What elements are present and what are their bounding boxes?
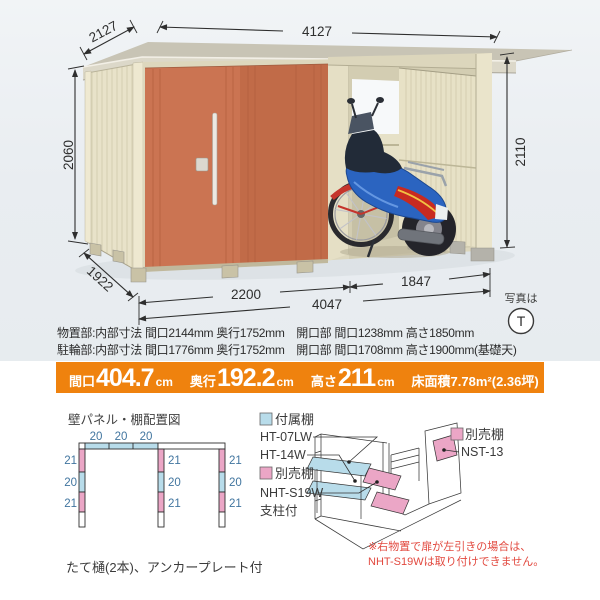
sliding-doors xyxy=(143,64,328,272)
optional-shelf-swatch xyxy=(260,467,272,479)
optional-shelf-note: 支柱付 xyxy=(260,503,298,518)
shed-product-sheet: 2127 4127 2060 2110 1922 2200 1847 4047 … xyxy=(0,0,600,600)
shed-left-wall xyxy=(85,62,143,272)
internal-dimension-specs: 物置部:内部寸法 間口2144mm 奥行1752mm 開口部 間口1238mm … xyxy=(57,325,517,358)
panel-mid-label-1: 21 xyxy=(168,455,181,467)
door-lock xyxy=(196,158,208,171)
optional-shelf2-model: NST-13 xyxy=(461,445,503,459)
dim-width-total: 4047 xyxy=(312,297,342,312)
summary-height-value: 211 xyxy=(338,364,375,393)
panel-left-label-1: 21 xyxy=(64,455,77,467)
right-mirror xyxy=(376,97,384,103)
panel-left-label-2: 20 xyxy=(64,477,77,489)
left-mirror xyxy=(347,98,355,104)
panel-mid-label-3: 21 xyxy=(168,498,181,510)
attached-shelf-label: 付属棚 xyxy=(275,412,314,427)
dim-height-left: 2060 xyxy=(61,140,76,170)
panel-mid-label-2: 20 xyxy=(168,477,181,489)
attached-shelf-model2: HT-14W xyxy=(260,448,306,462)
spec-bike-line: 駐輪部:内部寸法 間口1776mm 奥行1752mm 開口部 間口1708mm … xyxy=(57,342,517,359)
summary-width-unit: cm xyxy=(156,375,173,389)
photo-type-mark: T xyxy=(517,313,526,329)
panel-top-bar xyxy=(79,443,225,449)
warning-line-1: ※右物置で扉が左引きの場合は、 xyxy=(368,540,544,555)
dim-width-top: 4127 xyxy=(302,24,332,39)
panel-top-label-2: 20 xyxy=(115,431,128,443)
panel-right-label-3: 21 xyxy=(229,498,242,510)
spec-storage-line: 物置部:内部寸法 間口2144mm 奥行1752mm 開口部 間口1238mm … xyxy=(57,325,517,342)
summary-height-label: 高さ xyxy=(311,371,337,390)
dim-height-right: 2110 xyxy=(513,137,528,166)
summary-width-value: 404.7 xyxy=(96,364,154,393)
warning-line-2: NHT-S19Wは取り付けできません。 xyxy=(368,555,544,570)
panel-diagram-title: 壁パネル・棚配置図 xyxy=(68,412,181,427)
dim-width-bike: 1847 xyxy=(401,274,431,289)
attached-shelf-swatch xyxy=(260,413,272,425)
summary-floor-area: 床面積7.78m²(2.36坪) xyxy=(412,371,539,390)
door-handle xyxy=(213,113,218,205)
optional-shelf2-swatch xyxy=(451,428,463,440)
right-corner-post xyxy=(476,53,492,249)
photo-note-label: 写真は xyxy=(505,291,538,305)
panel-right-label-2: 20 xyxy=(229,477,242,489)
summary-depth-value: 192.2 xyxy=(217,364,275,393)
wall-panel-diagram: 壁パネル・棚配置図 20 20 20 xyxy=(53,407,258,559)
dimension-summary-bar: 間口 404.7 cm 奥行 192.2 cm 高さ 211 cm 床面積7.7… xyxy=(56,362,544,393)
optional-shelf2-label: 別売棚 xyxy=(465,427,504,442)
panel-column-right xyxy=(219,449,225,527)
shelf-boards xyxy=(307,435,457,519)
installation-warning: ※右物置で扉が左引きの場合は、 NHT-S19Wは取り付けできません。 xyxy=(368,540,544,569)
panel-top-label-1: 20 xyxy=(90,431,103,443)
panel-top-label-3: 20 xyxy=(140,431,153,443)
included-parts-note: たて樋(2本)、アンカープレート付 xyxy=(66,557,263,576)
shed-illustration: 2127 4127 2060 2110 1922 2200 1847 4047 … xyxy=(0,0,600,361)
panel-column-left xyxy=(79,449,85,527)
dim-width-storage: 2200 xyxy=(231,287,261,302)
panel-right-label-1: 21 xyxy=(229,455,242,467)
summary-depth-unit: cm xyxy=(277,375,294,389)
summary-height-unit: cm xyxy=(377,375,394,389)
attached-shelf-model1: HT-07LW xyxy=(260,430,312,444)
optional-shelf-label: 別売棚 xyxy=(275,466,314,481)
panel-left-label-3: 21 xyxy=(64,498,77,510)
optional-shelf-model: NHT-S19W xyxy=(260,486,323,500)
panel-column-middle xyxy=(158,449,164,527)
summary-depth-label: 奥行 xyxy=(190,371,216,390)
summary-width-label: 間口 xyxy=(69,371,95,390)
